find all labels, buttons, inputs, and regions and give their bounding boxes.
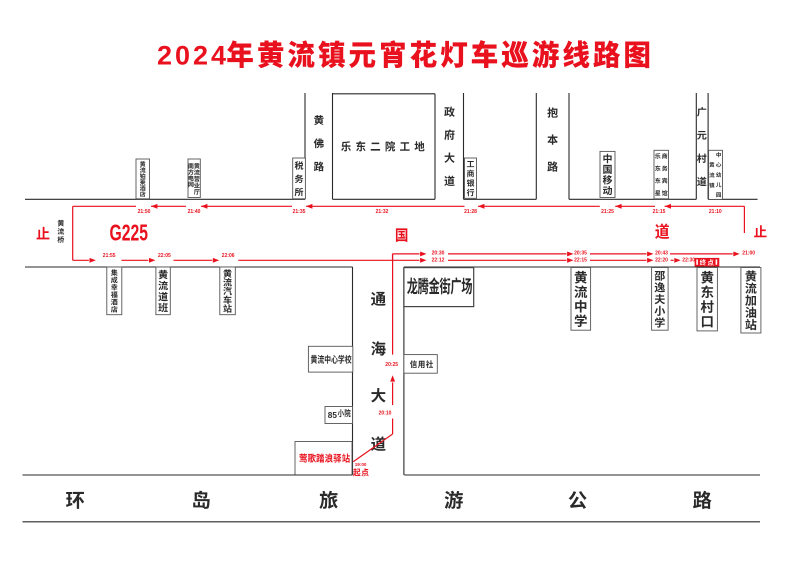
svg-text:22:05: 22:05 (158, 253, 171, 259)
svg-text:21:25: 21:25 (601, 209, 614, 215)
svg-text:21:50: 21:50 (138, 209, 151, 215)
svg-text:22:30: 22:30 (682, 258, 695, 264)
svg-text:G225: G225 (110, 219, 149, 245)
svg-text:2024: 2024 (157, 41, 229, 71)
svg-text:21:28: 21:28 (464, 209, 477, 215)
svg-text:21:55: 21:55 (103, 253, 116, 259)
svg-text:21:35: 21:35 (293, 209, 306, 215)
svg-text:22:12: 22:12 (432, 258, 445, 264)
svg-text:21:32: 21:32 (376, 209, 389, 215)
svg-text:22:15: 22:15 (574, 258, 587, 264)
svg-text:20:30: 20:30 (432, 250, 445, 256)
svg-text:20:25: 20:25 (385, 362, 398, 368)
svg-text:20:10: 20:10 (379, 410, 392, 416)
svg-text:22:20: 22:20 (655, 258, 668, 264)
svg-text:20:43: 20:43 (655, 250, 668, 256)
svg-text:21:15: 21:15 (653, 209, 666, 215)
svg-text:21:00: 21:00 (742, 250, 755, 256)
svg-text:20:35: 20:35 (574, 250, 587, 256)
svg-text:85: 85 (328, 411, 338, 420)
svg-text:21:10: 21:10 (709, 209, 722, 215)
svg-text:22:06: 22:06 (222, 253, 235, 259)
svg-text:21:40: 21:40 (188, 209, 201, 215)
svg-text:19:00: 19:00 (355, 462, 367, 467)
